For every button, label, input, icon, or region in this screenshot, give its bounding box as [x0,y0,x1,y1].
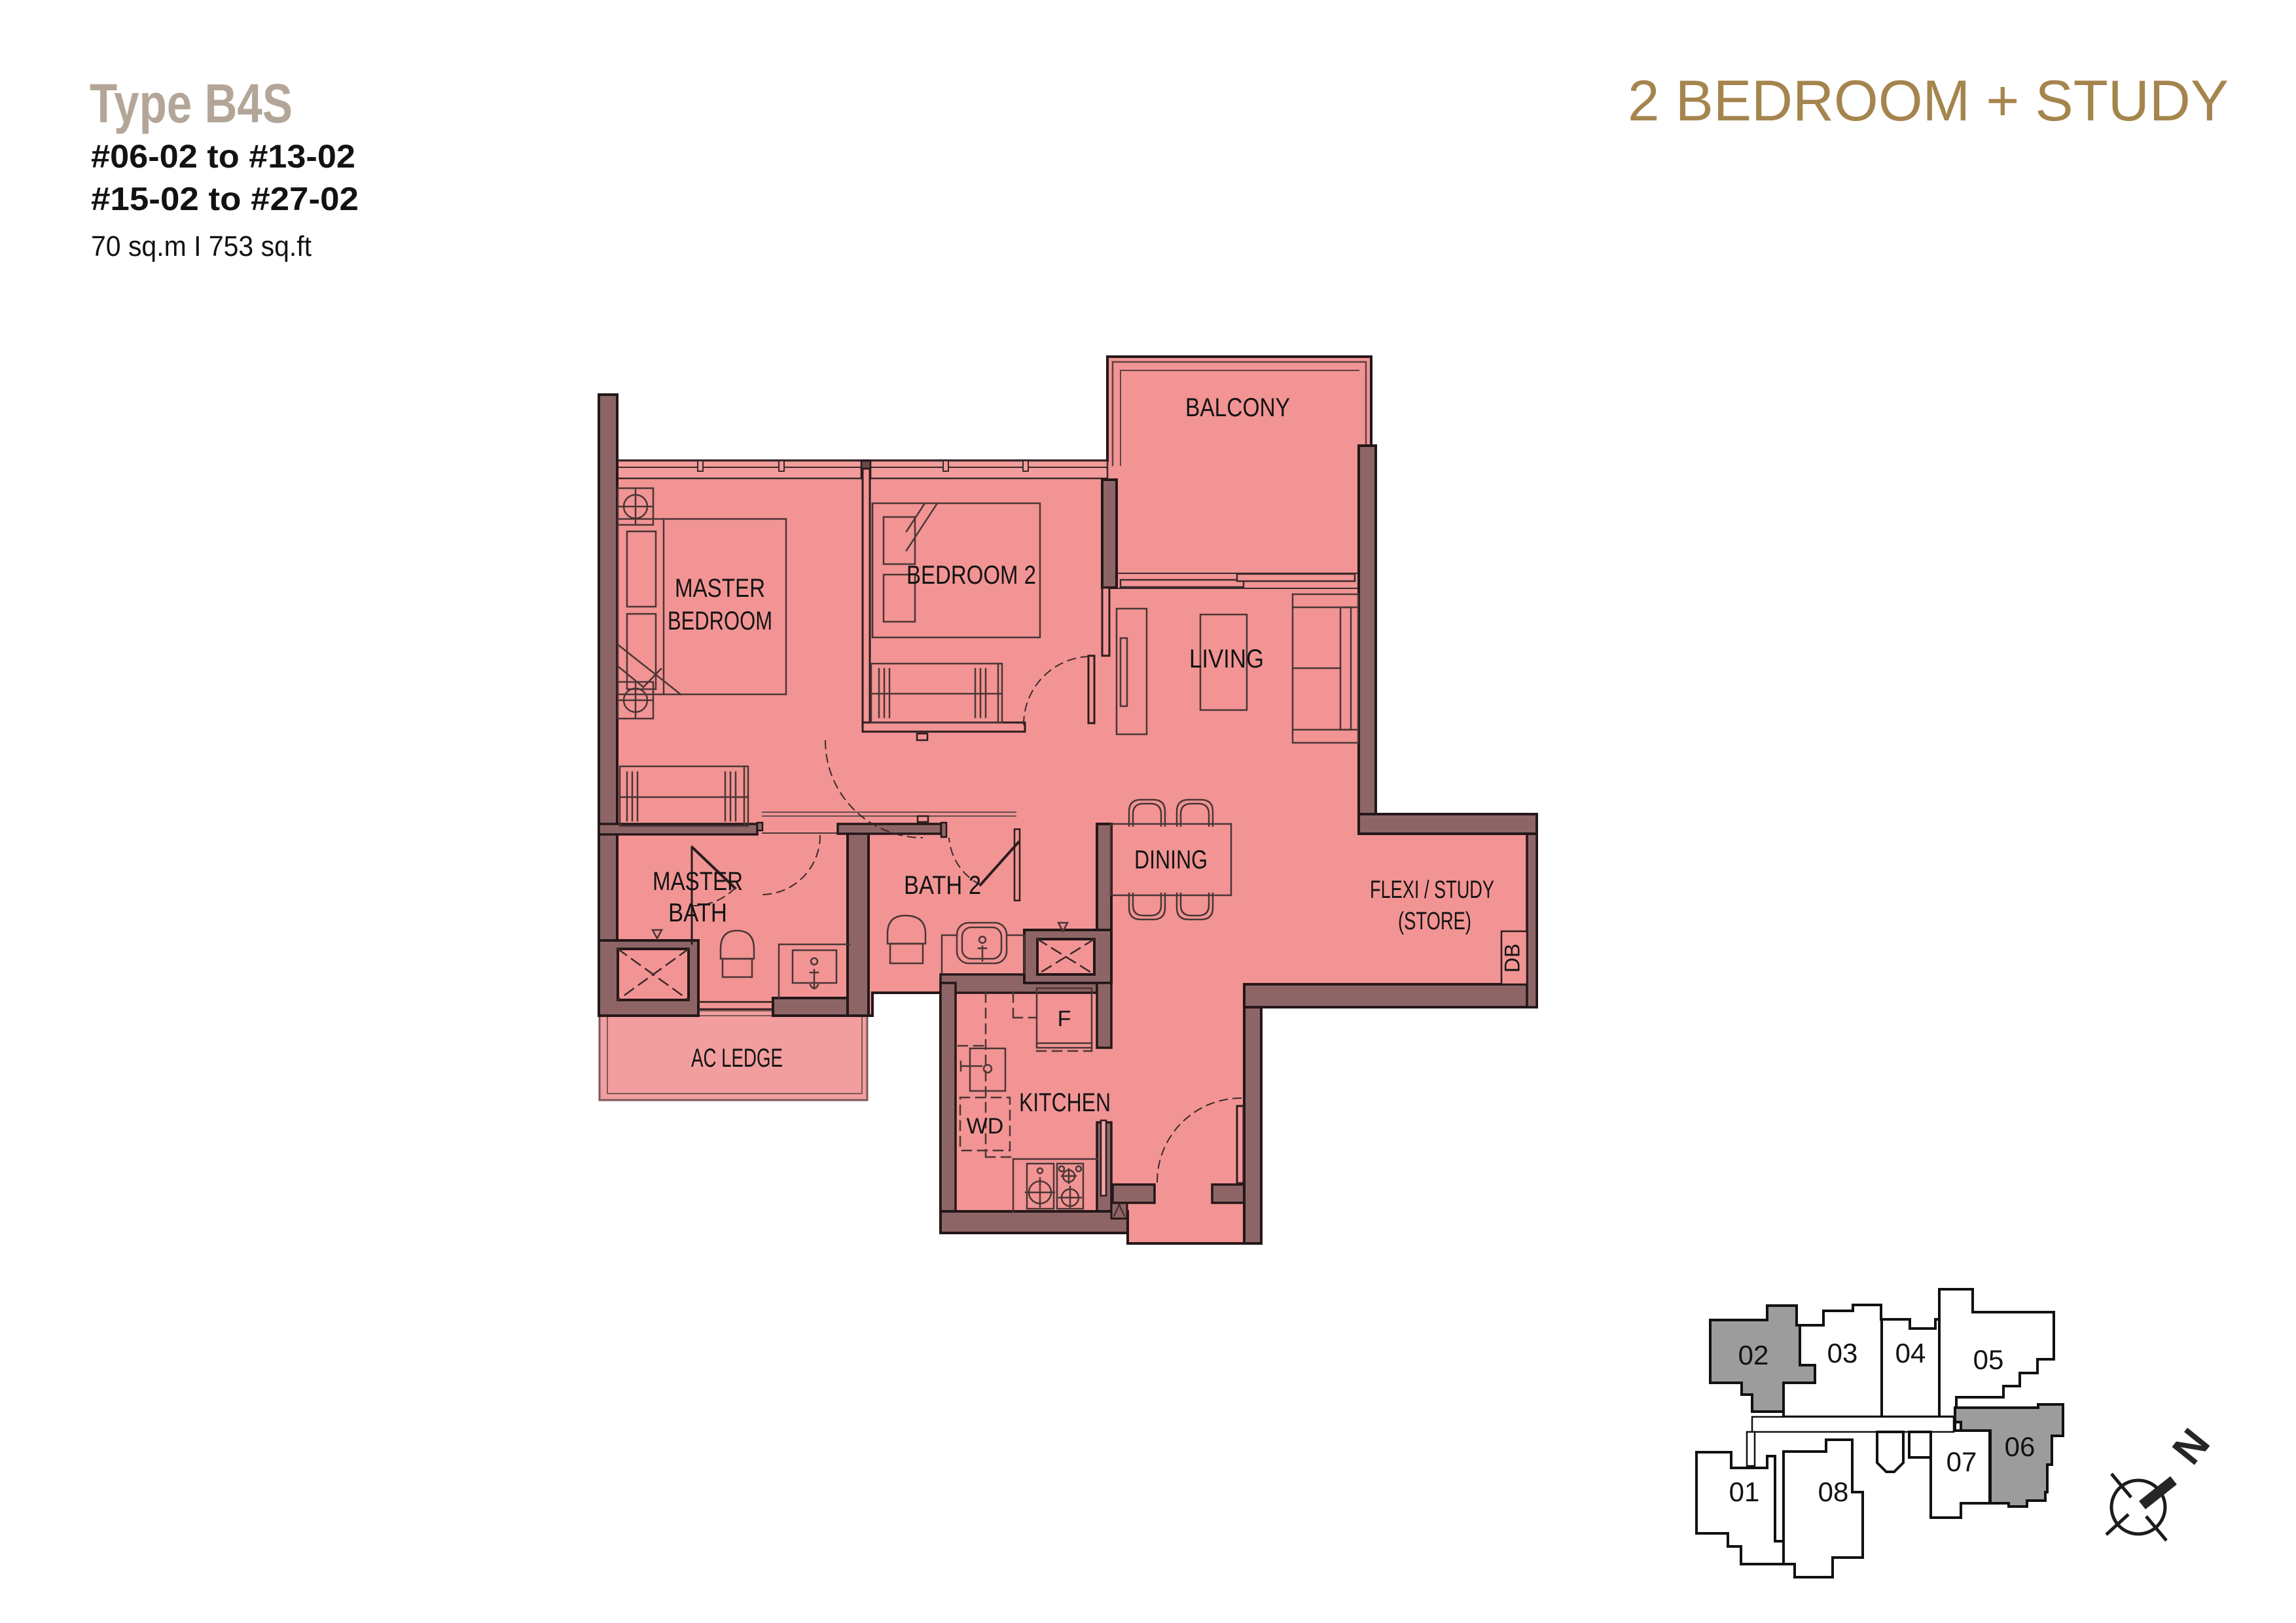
svg-text:02: 02 [1738,1340,1769,1370]
svg-text:2 BEDROOM + STUDY: 2 BEDROOM + STUDY [1628,68,2229,133]
svg-text:WD: WD [967,1114,1004,1139]
svg-text:BEDROOM 2: BEDROOM 2 [906,561,1036,590]
svg-text:08: 08 [1818,1476,1849,1507]
svg-text:MASTER: MASTER [675,574,765,603]
svg-text:Type B4S: Type B4S [90,73,293,134]
svg-text:07: 07 [1946,1446,1977,1477]
svg-text:BALCONY: BALCONY [1185,393,1290,422]
svg-text:BATH 2: BATH 2 [904,871,981,900]
svg-text:LIVING: LIVING [1189,645,1264,673]
svg-text:04: 04 [1895,1338,1926,1368]
svg-text:BEDROOM: BEDROOM [668,607,772,635]
svg-text:05: 05 [1973,1344,2004,1375]
svg-text:06: 06 [2005,1431,2036,1462]
svg-text:FLEXI / STUDY: FLEXI / STUDY [1370,876,1494,904]
svg-text:03: 03 [1827,1338,1858,1368]
svg-text:KITCHEN: KITCHEN [1019,1088,1111,1117]
svg-text:(STORE): (STORE) [1398,908,1471,935]
svg-text:BATH: BATH [668,899,727,927]
svg-text:01: 01 [1729,1476,1760,1507]
svg-text:F: F [1058,1007,1071,1031]
svg-text:DB: DB [1500,944,1524,972]
svg-text:MASTER: MASTER [653,867,743,896]
svg-text:DINING: DINING [1134,846,1208,874]
svg-text:70 sq.m I 753 sq.ft: 70 sq.m I 753 sq.ft [91,230,312,262]
svg-text:AC LEDGE: AC LEDGE [691,1044,783,1073]
svg-text:#06-02 to #13-02: #06-02 to #13-02 [91,138,355,175]
svg-text:#15-02 to #27-02: #15-02 to #27-02 [91,181,359,217]
